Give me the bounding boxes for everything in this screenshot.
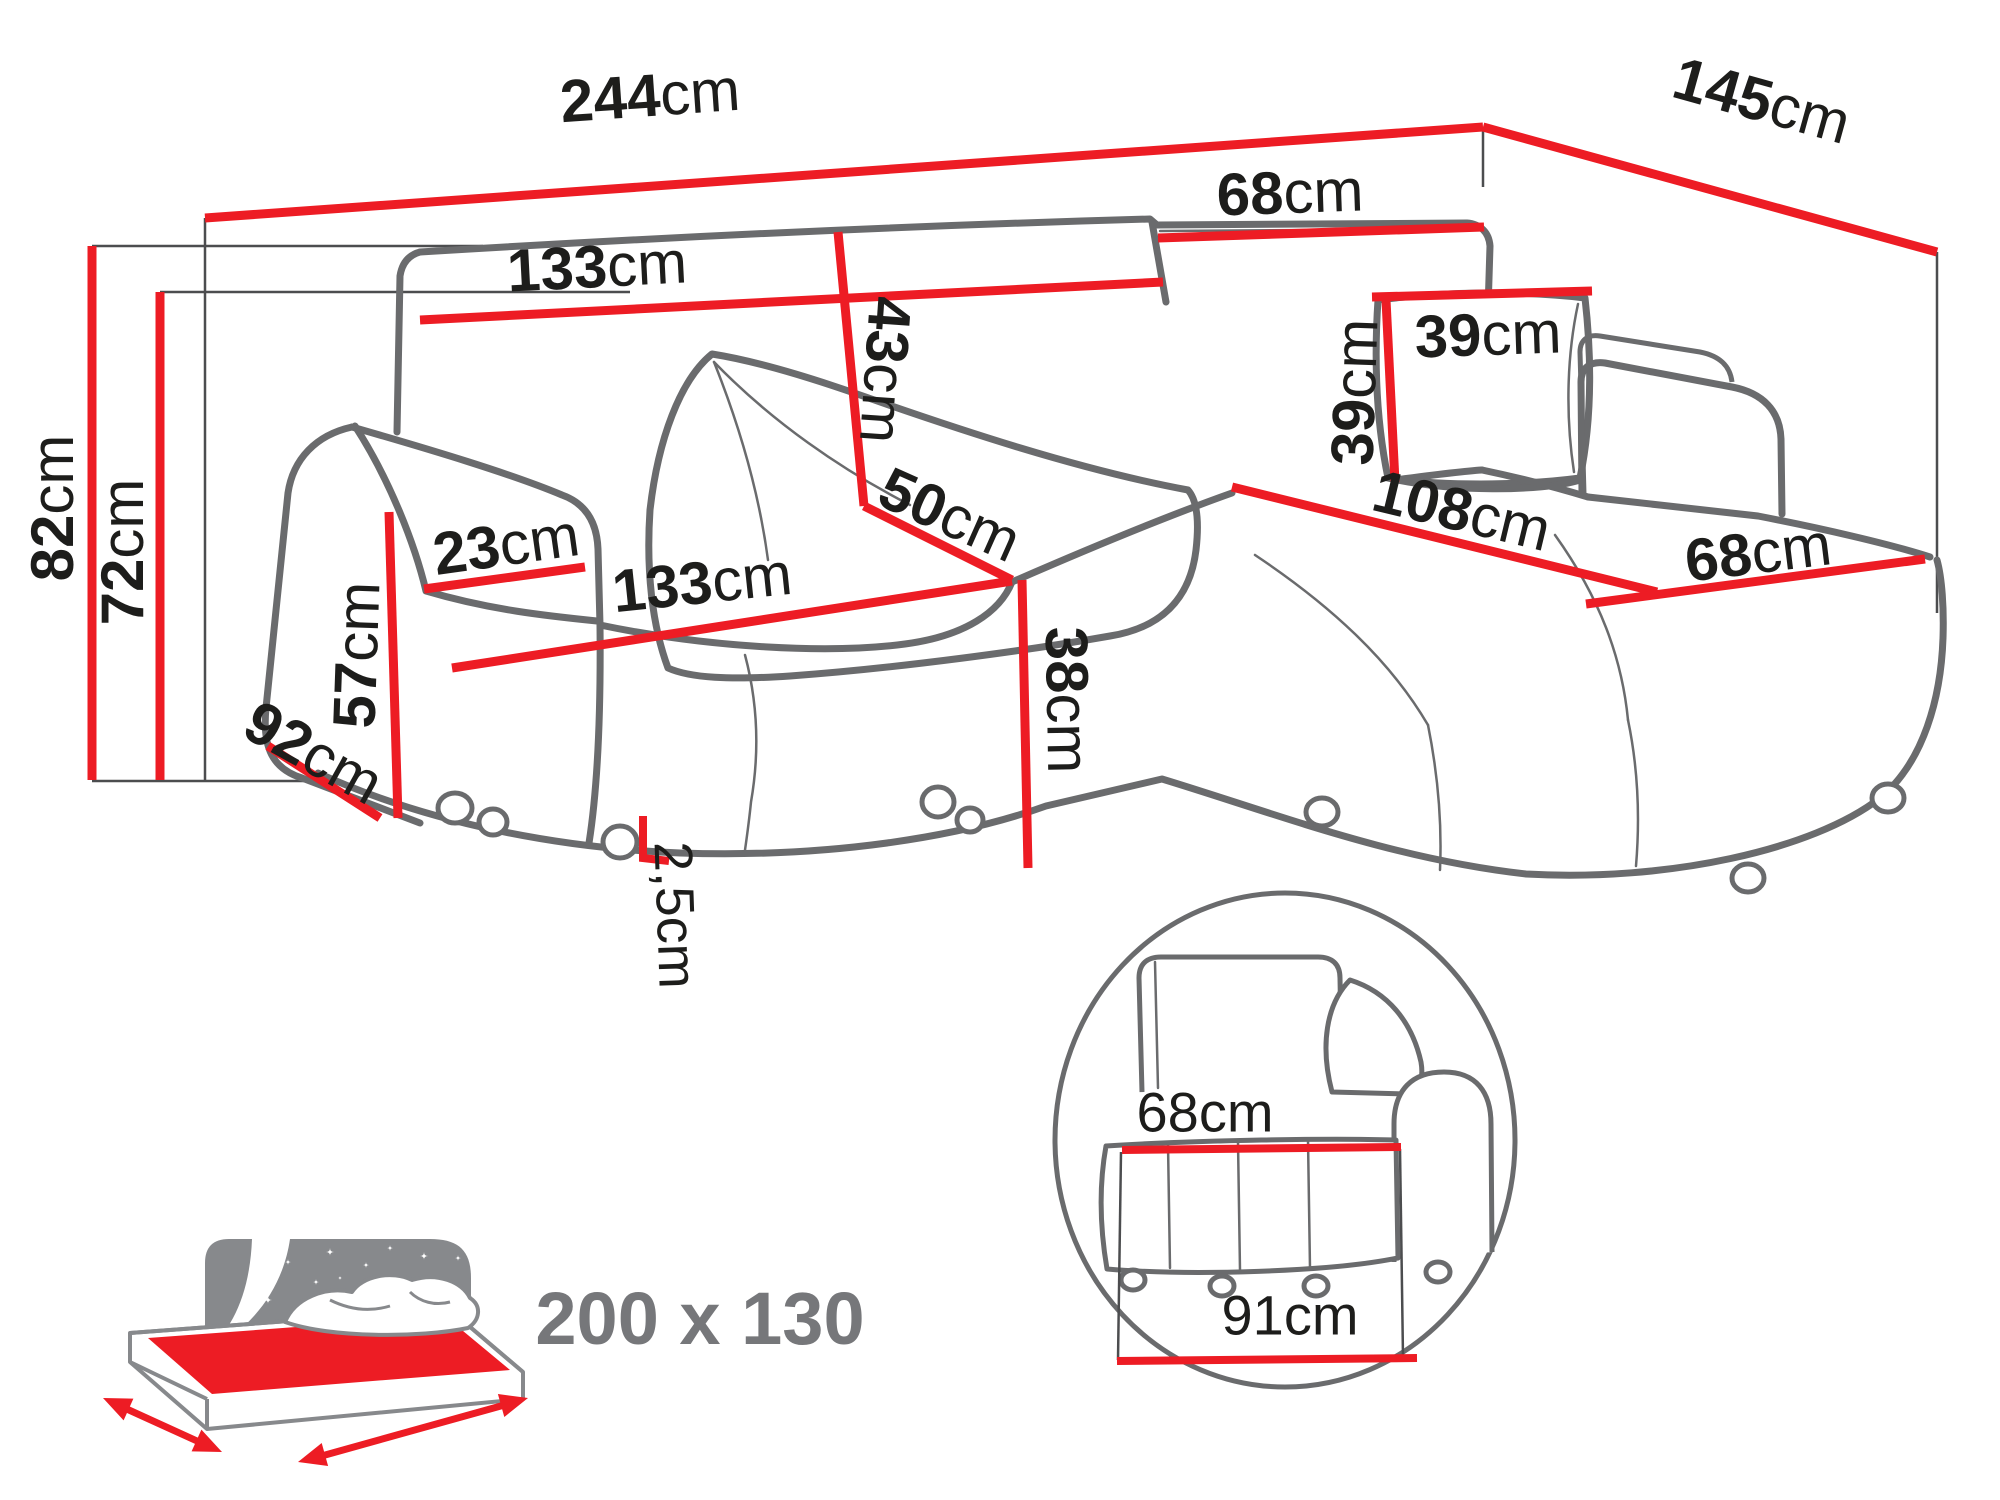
detail-seat xyxy=(1101,1139,1398,1272)
detail-dim-line-91 xyxy=(1117,1358,1417,1361)
dim-line-38 xyxy=(1022,580,1028,868)
label-leg-height: 2,5cm xyxy=(643,840,708,989)
sofa-foot xyxy=(479,809,507,835)
detail-backrest xyxy=(1139,957,1342,1092)
label-height-72: 72cm xyxy=(89,479,156,626)
sleeping-function-icon: 200 x 130 xyxy=(103,1239,865,1466)
detail-view-circle: 68cm 91cm xyxy=(1055,893,1515,1387)
detail-label-base-depth: 91cm xyxy=(1222,1284,1359,1347)
sofa-foot xyxy=(922,787,954,817)
detail-label-seat-depth: 68cm xyxy=(1137,1081,1274,1144)
sofa-foot xyxy=(603,826,637,858)
chaise-front-seam-2 xyxy=(1628,720,1638,866)
sofa-foot xyxy=(1306,798,1338,826)
detail-armrest xyxy=(1394,1072,1492,1262)
dim-line-68-back xyxy=(1158,227,1484,238)
dimension-labels: 244cm 145cm 82cm 72cm 133cm 43cm 68cm 39… xyxy=(19,44,1858,989)
label-total-width: 244cm xyxy=(558,56,742,135)
label-chaise-width: 68cm xyxy=(1681,510,1835,594)
seat-front-seam xyxy=(745,655,756,850)
label-total-height: 82cm xyxy=(19,435,86,582)
label-back-cushion-height: 43cm xyxy=(847,294,924,445)
label-seat-height: 38cm xyxy=(1033,626,1103,774)
label-total-depth: 145cm xyxy=(1666,44,1857,157)
sofa-foot xyxy=(957,808,983,832)
dim-line-145 xyxy=(1483,127,1937,252)
chaise-front-seam-1 xyxy=(1428,725,1441,870)
chaise-seam-2 xyxy=(1555,535,1628,720)
dim-line-39-horizontal xyxy=(1372,291,1592,297)
sofa-foot xyxy=(1732,864,1764,892)
label-pillow-width: 39cm xyxy=(1414,298,1563,370)
backrest-left-edge xyxy=(397,252,420,432)
label-armrest-height: 57cm xyxy=(320,581,392,730)
detail-foot xyxy=(1121,1270,1145,1290)
detail-dim-line-68 xyxy=(1122,1147,1401,1150)
label-back-cushion-width: 133cm xyxy=(505,228,688,304)
bed-size-label: 200 x 130 xyxy=(535,1277,864,1360)
sofa-foot xyxy=(438,793,472,823)
label-pillow-height: 39cm xyxy=(1318,318,1390,467)
sofa-dimension-diagram: 244cm 145cm 82cm 72cm 133cm 43cm 68cm 39… xyxy=(0,0,2000,1500)
dim-line-57 xyxy=(389,512,398,818)
detail-foot xyxy=(1426,1262,1450,1282)
label-corner-back-cushion-width: 68cm xyxy=(1216,156,1365,228)
chaise-seam-1 xyxy=(1255,555,1428,725)
right-armrest xyxy=(1581,363,1782,514)
sofa-foot xyxy=(1872,784,1904,812)
